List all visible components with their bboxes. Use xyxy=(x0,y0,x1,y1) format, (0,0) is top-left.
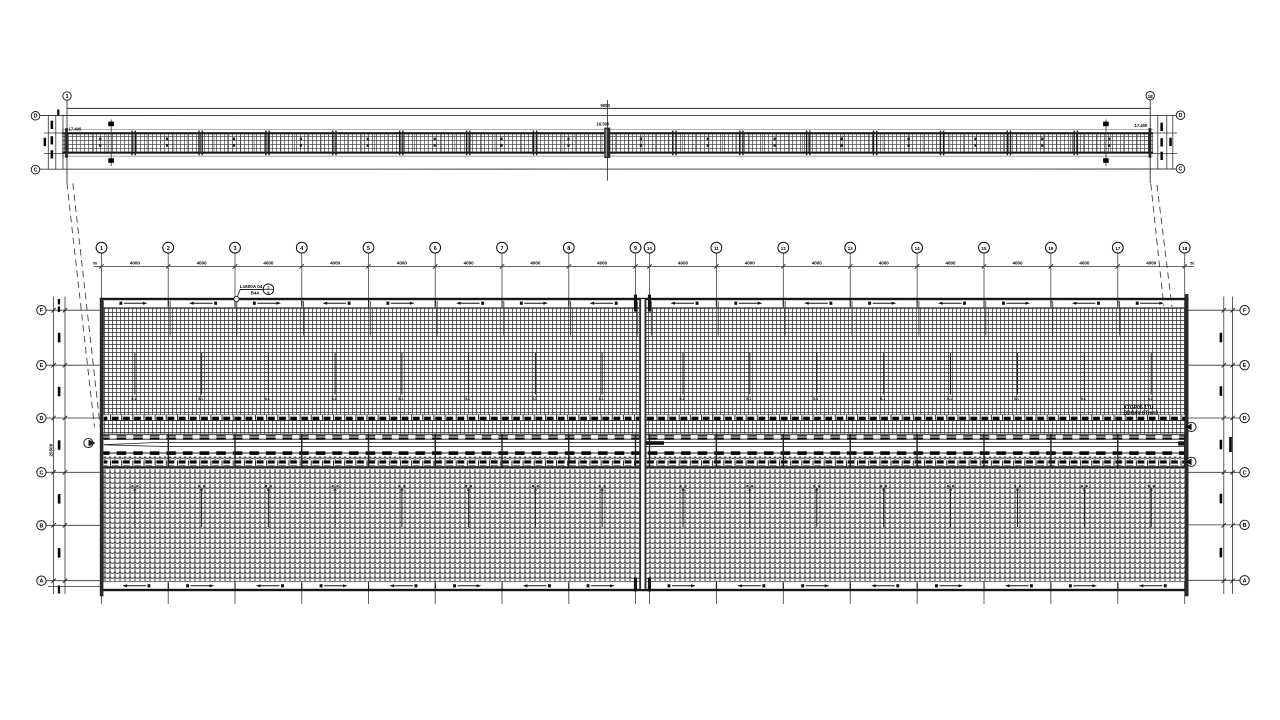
svg-text:5-1: 5-1 xyxy=(746,397,751,401)
svg-text:A: A xyxy=(1243,578,1247,584)
svg-text:4000: 4000 xyxy=(1012,260,1023,265)
svg-text:D: D xyxy=(34,114,38,120)
svg-text:B4A: B4A xyxy=(251,291,261,296)
svg-text:4000: 4000 xyxy=(879,260,890,265)
svg-text:E: E xyxy=(40,363,44,369)
svg-text:16.500: 16.500 xyxy=(597,121,610,126)
svg-text:10: 10 xyxy=(647,246,653,251)
svg-text:4000: 4000 xyxy=(812,260,823,265)
svg-text:8: 8 xyxy=(567,246,570,252)
svg-text:18: 18 xyxy=(1182,246,1188,251)
svg-text:C: C xyxy=(39,470,43,476)
svg-text:5-1: 5-1 xyxy=(1081,397,1086,401)
svg-text:B: B xyxy=(1243,523,1247,529)
svg-text:14: 14 xyxy=(915,246,921,251)
svg-text:4000: 4000 xyxy=(745,260,756,265)
svg-text:4000: 4000 xyxy=(263,260,274,265)
svg-text:4000: 4000 xyxy=(945,260,956,265)
svg-text:4: 4 xyxy=(300,246,303,252)
svg-text:B: B xyxy=(39,523,43,529)
svg-text:5-1: 5-1 xyxy=(680,397,685,401)
svg-text:5-1: 5-1 xyxy=(947,397,952,401)
svg-text:17: 17 xyxy=(1115,246,1121,251)
svg-text:9000: 9000 xyxy=(601,103,611,108)
svg-text:15: 15 xyxy=(981,246,987,251)
svg-text:5-1: 5-1 xyxy=(532,397,537,401)
svg-text:C: C xyxy=(1179,167,1183,173)
svg-text:4000: 4000 xyxy=(464,260,475,265)
svg-text:5-1: 5-1 xyxy=(332,397,337,401)
svg-text:5-1: 5-1 xyxy=(599,397,604,401)
svg-text:4000: 4000 xyxy=(130,260,141,265)
svg-text:16: 16 xyxy=(1048,246,1054,251)
svg-text:17.400: 17.400 xyxy=(69,127,82,132)
svg-text:18: 18 xyxy=(1148,94,1154,99)
svg-text:5-1: 5-1 xyxy=(813,397,818,401)
svg-text:A: A xyxy=(39,579,43,585)
svg-text:50: 50 xyxy=(1190,261,1194,265)
svg-text:4000: 4000 xyxy=(330,260,341,265)
svg-text:1: 1 xyxy=(65,94,68,100)
svg-text:BDG4V 6Tm=3: BDG4V 6Tm=3 xyxy=(1124,410,1159,416)
svg-text:25500: 25500 xyxy=(48,443,53,456)
svg-text:6: 6 xyxy=(434,246,437,252)
svg-text:5-1: 5-1 xyxy=(198,397,203,401)
svg-text:5-1: 5-1 xyxy=(265,397,270,401)
svg-text:E: E xyxy=(1243,363,1247,369)
svg-text:3: 3 xyxy=(234,246,237,252)
svg-text:D: D xyxy=(1179,113,1183,119)
svg-text:50: 50 xyxy=(93,261,97,265)
svg-text:11: 11 xyxy=(714,246,719,251)
svg-text:5-1: 5-1 xyxy=(1014,397,1019,401)
svg-text:4000: 4000 xyxy=(678,260,689,265)
svg-text:5-1: 5-1 xyxy=(398,397,403,401)
svg-text:4000: 4000 xyxy=(1146,260,1157,265)
svg-text:4000: 4000 xyxy=(1079,260,1090,265)
svg-text:C: C xyxy=(34,168,38,174)
svg-text:C: C xyxy=(1243,470,1247,476)
svg-text:4000: 4000 xyxy=(397,260,408,265)
svg-text:4000: 4000 xyxy=(530,260,541,265)
svg-text:5-1: 5-1 xyxy=(880,397,885,401)
svg-text:9: 9 xyxy=(634,246,637,252)
svg-text:17.400: 17.400 xyxy=(1135,123,1148,128)
svg-text:4000: 4000 xyxy=(197,260,208,265)
svg-text:13: 13 xyxy=(848,246,854,251)
svg-text:5-1: 5-1 xyxy=(465,397,470,401)
svg-text:1: 1 xyxy=(100,246,103,252)
svg-text:5: 5 xyxy=(367,246,370,252)
svg-text:7: 7 xyxy=(501,246,504,252)
svg-text:4000: 4000 xyxy=(597,260,608,265)
svg-text:5-1: 5-1 xyxy=(131,397,136,401)
svg-text:5-1: 5-1 xyxy=(1148,397,1153,401)
svg-text:12: 12 xyxy=(781,246,787,251)
svg-text:D: D xyxy=(1243,416,1247,422)
svg-text:2: 2 xyxy=(167,246,170,252)
svg-text:L1600A 04: L1600A 04 xyxy=(240,284,263,289)
svg-text:D: D xyxy=(39,416,43,422)
